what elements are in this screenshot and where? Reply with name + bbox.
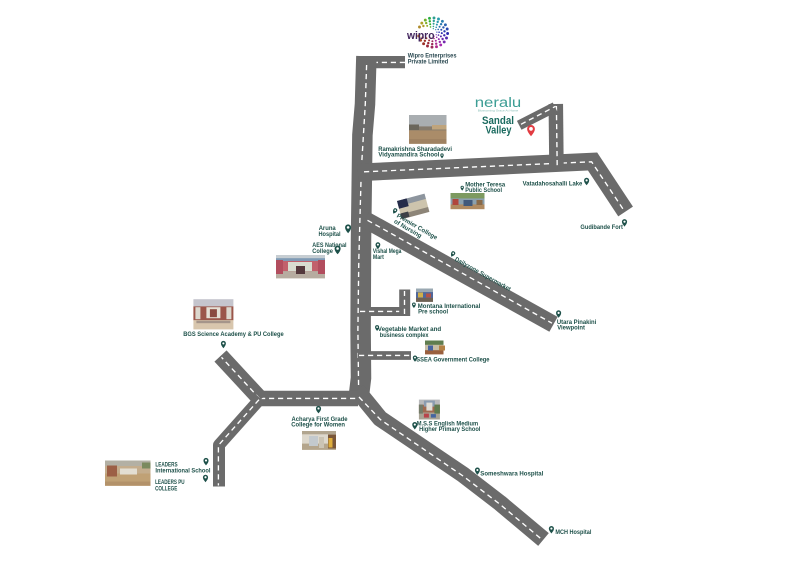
svg-text:College: College <box>312 248 333 255</box>
svg-text:Someshwara Hospital: Someshwara Hospital <box>480 470 543 477</box>
svg-text:MCH Hospital: MCH Hospital <box>555 529 591 536</box>
svg-text:International School: International School <box>155 468 210 475</box>
svg-text:Public School: Public School <box>465 187 502 194</box>
svg-text:BGS Science Academy & PU Colle: BGS Science Academy & PU College <box>183 331 284 338</box>
svg-text:College for Women: College for Women <box>291 421 345 428</box>
svg-text:wipro: wipro <box>406 30 434 42</box>
svg-text:COLLEGE: COLLEGE <box>155 486 177 493</box>
svg-text:Hospital: Hospital <box>319 231 341 238</box>
svg-text:Higher Primary School: Higher Primary School <box>419 426 481 433</box>
svg-text:Viewpoint: Viewpoint <box>557 325 585 332</box>
svg-text:SSEA Government College: SSEA Government College <box>416 357 490 364</box>
svg-text:Pre school: Pre school <box>418 309 448 316</box>
svg-text:Vidyamandira School: Vidyamandira School <box>378 152 439 159</box>
svg-text:Gudibande Fort: Gudibande Fort <box>580 224 623 231</box>
svg-text:Valley: Valley <box>486 124 513 136</box>
svg-text:Mart: Mart <box>373 254 384 261</box>
svg-text:Private Limited: Private Limited <box>408 59 449 66</box>
svg-text:Vatadahosahalli Lake: Vatadahosahalli Lake <box>523 181 583 188</box>
svg-text:Blossoming Grace At Home: Blossoming Grace At Home <box>478 108 519 112</box>
svg-text:business complex: business complex <box>380 332 429 339</box>
